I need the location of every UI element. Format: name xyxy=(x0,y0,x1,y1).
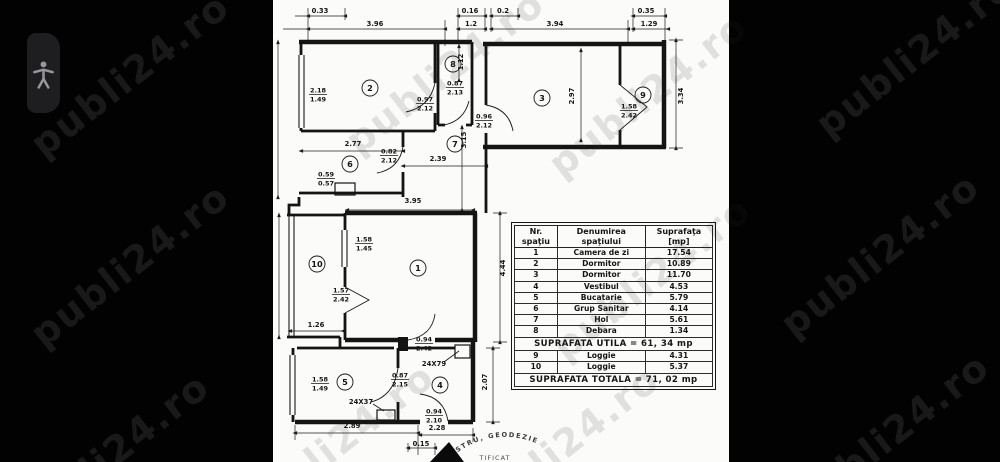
dim-label: 0.2 xyxy=(497,7,509,15)
dim-label: 2.28 xyxy=(429,424,446,432)
table-header-cell: Denumirea spaţiului xyxy=(557,226,645,248)
room-number-circle: 4 xyxy=(432,377,448,393)
table-cell: 10.89 xyxy=(645,259,712,270)
table-cell: 6 xyxy=(515,304,558,315)
screenshot-stage: 0.333.960.161.20.23.940.351.292.772.393.… xyxy=(0,0,1000,462)
table-cell: SUPRAFATA UTILA = 61, 34 mp xyxy=(515,337,713,351)
svg-text:2.18: 2.18 xyxy=(310,87,327,95)
dim-label: 4.44 xyxy=(499,259,507,276)
svg-text:1.57: 1.57 xyxy=(333,287,349,295)
svg-text:1.58: 1.58 xyxy=(312,376,329,384)
svg-text:3: 3 xyxy=(539,93,545,103)
dim-label: 0.35 xyxy=(638,7,655,15)
table-cell: 4.53 xyxy=(645,281,712,292)
table-row: 7Hol5.61 xyxy=(515,315,713,326)
svg-text:2.12: 2.12 xyxy=(381,157,397,165)
table-cell: Dormitor xyxy=(557,259,645,270)
svg-text:2.12: 2.12 xyxy=(476,122,492,130)
room-number-circle: 6 xyxy=(342,156,358,172)
opening-size-label: 1.581.45 xyxy=(355,236,373,253)
table-cell: SUPRAFATA TOTALA = 71, 02 mp xyxy=(515,373,713,387)
svg-text:0.94: 0.94 xyxy=(416,336,433,344)
room-number-circle: 1 xyxy=(410,260,426,276)
room-number-circle: 5 xyxy=(337,374,353,390)
table-row: 2Dormitor10.89 xyxy=(515,259,713,270)
watermark-text: publi24.ro xyxy=(782,344,998,462)
opening-size-label: 2.181.49 xyxy=(309,87,327,104)
subtotal-row: SUPRAFATA UTILA = 61, 34 mp xyxy=(515,337,713,351)
table-cell: Dormitor xyxy=(557,270,645,281)
table-header-cell: Suprafaţa [mp] xyxy=(645,226,712,248)
opening-size-label: 0.590.57 xyxy=(317,171,335,188)
dim-label: 24X37 xyxy=(349,398,373,406)
svg-text:0.87: 0.87 xyxy=(447,80,463,88)
opening-size-label: 0.942.10 xyxy=(425,408,443,425)
floorplan-document[interactable]: 0.333.960.161.20.23.940.351.292.772.393.… xyxy=(273,0,729,462)
svg-text:10: 10 xyxy=(311,259,323,269)
svg-text:0.96: 0.96 xyxy=(476,113,493,121)
table-cell: Camera de zi xyxy=(557,248,645,259)
opening-size-label: 0.822.12 xyxy=(380,148,398,165)
svg-text:0.97: 0.97 xyxy=(417,96,433,104)
table-cell: Loggie xyxy=(557,351,645,362)
opening-size-label: 1.572.42 xyxy=(332,287,350,304)
room-number-circle: 10 xyxy=(309,256,325,272)
table-row: 5Bucatarie5.79 xyxy=(515,292,713,303)
table-cell: 1.34 xyxy=(645,326,712,337)
table-row: 8Debara1.34 xyxy=(515,326,713,337)
table-row: 1Camera de zi17.54 xyxy=(515,248,713,259)
dim-label: 2.89 xyxy=(344,422,361,430)
svg-text:0.82: 0.82 xyxy=(381,148,397,156)
svg-text:1.49: 1.49 xyxy=(310,96,327,104)
svg-text:6: 6 xyxy=(347,159,353,169)
opening-size-label: 0.972.12 xyxy=(416,96,434,113)
table-cell: Loggie xyxy=(557,362,645,373)
svg-text:1.58: 1.58 xyxy=(621,103,638,111)
table-cell: 3 xyxy=(515,270,558,281)
dim-label: 2.39 xyxy=(430,155,447,163)
svg-text:0.59: 0.59 xyxy=(318,171,335,179)
accessibility-icon xyxy=(32,59,55,91)
svg-text:2.12: 2.12 xyxy=(417,105,433,113)
stamp-sub-text: TIFICAT xyxy=(479,454,511,462)
windows xyxy=(289,55,347,415)
svg-text:4: 4 xyxy=(437,380,443,390)
table-row: 9Loggie4.31 xyxy=(515,351,713,362)
watermark-text: publi24.ro xyxy=(772,164,988,346)
opening-size-label: 0.872.13 xyxy=(446,80,464,97)
table-row: 4Vestibul4.53 xyxy=(515,281,713,292)
room-number-circle: 9 xyxy=(635,87,651,103)
opening-size-label: 0.872.15 xyxy=(391,372,409,389)
svg-text:1.58: 1.58 xyxy=(356,236,373,244)
table-cell: 5.79 xyxy=(645,292,712,303)
table-cell: 4 xyxy=(515,281,558,292)
table-cell: 17.54 xyxy=(645,248,712,259)
dim-label: 3.94 xyxy=(547,20,564,28)
table-row: 3Dormitor11.70 xyxy=(515,270,713,281)
table-cell: Grup Sanitar xyxy=(557,304,645,315)
dim-label: 0.33 xyxy=(312,7,329,15)
table-cell: 9 xyxy=(515,351,558,362)
total-row: SUPRAFATA TOTALA = 71, 02 mp xyxy=(515,373,713,387)
dim-label: 1.2 xyxy=(465,20,477,28)
opening-size-label: 1.581.49 xyxy=(311,376,329,393)
dim-label: 0.15 xyxy=(413,440,430,448)
dim-label: 3.34 xyxy=(677,87,685,104)
dim-label: 2.77 xyxy=(345,140,362,148)
svg-text:5: 5 xyxy=(342,377,348,387)
svg-text:1.49: 1.49 xyxy=(312,385,329,393)
stamp: CADASTRU, GEODEZIE TIFICAT xyxy=(430,431,580,462)
dim-label: 1.29 xyxy=(641,20,658,28)
dim-label: 2.07 xyxy=(481,373,489,390)
dim-label: 3.95 xyxy=(405,197,422,205)
svg-text:2.42: 2.42 xyxy=(416,345,432,353)
table-cell: 4.14 xyxy=(645,304,712,315)
opening-size-label: 0.942.42 xyxy=(415,336,433,353)
table-cell: 4.31 xyxy=(645,351,712,362)
dim-label: 2.97 xyxy=(568,87,576,104)
svg-text:2: 2 xyxy=(367,83,373,93)
table-cell: 5.61 xyxy=(645,315,712,326)
svg-text:2.42: 2.42 xyxy=(333,296,349,304)
table-cell: Vestibul xyxy=(557,281,645,292)
watermark-text: publi24.ro xyxy=(22,174,238,356)
table-row: 10Loggie5.37 xyxy=(515,362,713,373)
table-cell: 10 xyxy=(515,362,558,373)
svg-text:2.13: 2.13 xyxy=(447,89,463,97)
accessibility-tab-button[interactable] xyxy=(27,33,60,113)
svg-text:7: 7 xyxy=(452,139,458,149)
dim-label: 3.15 xyxy=(460,131,468,148)
svg-text:1: 1 xyxy=(415,263,421,273)
table-cell: 5.37 xyxy=(645,362,712,373)
table-cell: 1 xyxy=(515,248,558,259)
dim-label: 24X79 xyxy=(422,360,446,368)
opening-size-label: 1.582.42 xyxy=(620,103,638,120)
dim-label: 0.16 xyxy=(462,7,479,15)
table-cell: 8 xyxy=(515,326,558,337)
table-cell: 5 xyxy=(515,292,558,303)
svg-text:2.42: 2.42 xyxy=(621,112,637,120)
table-cell: Hol xyxy=(557,315,645,326)
room-number-circle: 3 xyxy=(534,90,550,106)
svg-text:0.57: 0.57 xyxy=(318,180,334,188)
watermark-text: publi24.ro xyxy=(807,0,1000,146)
svg-text:0.94: 0.94 xyxy=(426,408,443,416)
table-cell: Bucatarie xyxy=(557,292,645,303)
areas-table: Nr. spaţiuDenumirea spaţiuluiSuprafaţa [… xyxy=(514,225,713,387)
svg-text:2.15: 2.15 xyxy=(392,381,409,389)
svg-text:0.87: 0.87 xyxy=(392,372,408,380)
svg-text:8: 8 xyxy=(450,59,456,69)
table-cell: Debara xyxy=(557,326,645,337)
svg-text:9: 9 xyxy=(640,90,646,100)
watermark-text: publi24.ro xyxy=(2,364,218,462)
dim-label: 3.96 xyxy=(367,20,384,28)
table-cell: 7 xyxy=(515,315,558,326)
room-number-circle: 2 xyxy=(362,80,378,96)
table-cell: 2 xyxy=(515,259,558,270)
dim-label: 1.26 xyxy=(308,321,325,329)
svg-text:2.10: 2.10 xyxy=(426,417,443,425)
opening-size-label: 0.962.12 xyxy=(475,113,493,130)
svg-text:1.45: 1.45 xyxy=(356,245,373,253)
table-cell: 11.70 xyxy=(645,270,712,281)
table-header-cell: Nr. spaţiu xyxy=(515,226,558,248)
table-row: 6Grup Sanitar4.14 xyxy=(515,304,713,315)
